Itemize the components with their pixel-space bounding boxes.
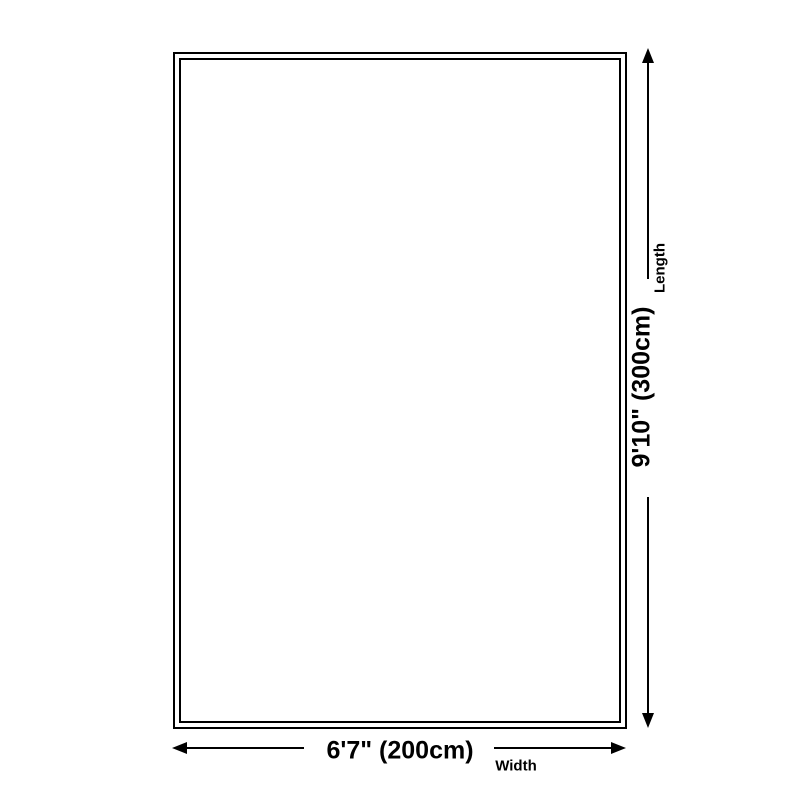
dimension-diagram: Length 9'10" (300cm) 6'7" (200cm) Width: [0, 0, 800, 800]
rug-outline-inner: [179, 58, 621, 723]
rug-outline-outer: [173, 52, 627, 729]
width-dimension-label: Width: [495, 758, 537, 775]
length-dimension-line-bottom: [647, 497, 649, 713]
width-dimension-value: 6'7" (200cm): [326, 737, 473, 766]
width-dimension-line-left: [186, 747, 304, 749]
length-dimension-value: 9'10" (300cm): [628, 307, 657, 468]
length-dimension-line-top: [647, 61, 649, 279]
length-dimension-label: Length: [652, 243, 669, 293]
arrow-down-icon: [642, 713, 654, 728]
width-dimension-line-right: [494, 747, 612, 749]
arrow-left-icon: [172, 742, 187, 754]
arrow-right-icon: [611, 742, 626, 754]
